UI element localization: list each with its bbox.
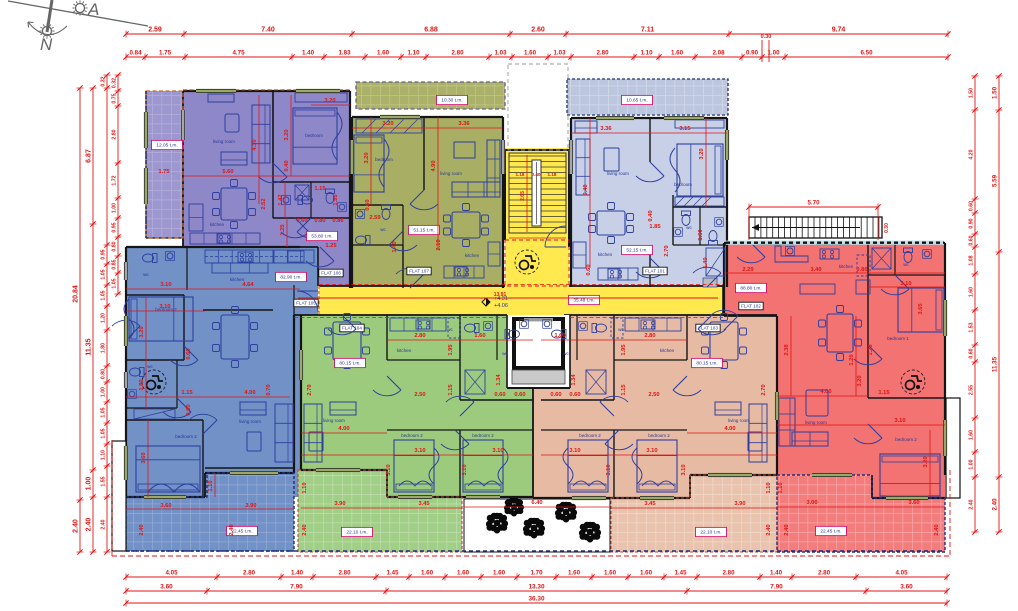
svg-text:0.80: 0.80	[314, 218, 325, 224]
svg-text:0.32: 0.32	[101, 76, 107, 86]
svg-text:2.10: 2.10	[436, 239, 442, 250]
svg-text:1.60: 1.60	[671, 50, 684, 57]
svg-text:3.20: 3.20	[364, 152, 370, 163]
svg-text:1.15: 1.15	[181, 390, 193, 396]
svg-text:0.40: 0.40	[648, 210, 654, 221]
svg-text:3.10: 3.10	[894, 418, 905, 424]
svg-text:1.40: 1.40	[703, 257, 709, 268]
svg-text:2.70: 2.70	[761, 384, 767, 395]
svg-text:2.59: 2.59	[148, 27, 162, 34]
svg-text:2.40: 2.40	[73, 519, 80, 533]
svg-text:1.10: 1.10	[208, 480, 214, 491]
svg-text:3.40: 3.40	[810, 267, 821, 273]
svg-text:3.20: 3.20	[139, 326, 145, 337]
svg-text:9.74: 9.74	[832, 27, 846, 34]
svg-text:2.50: 2.50	[648, 392, 659, 398]
svg-text:living room: living room	[440, 171, 462, 176]
svg-text:3.60: 3.60	[160, 584, 173, 591]
svg-text:0.30: 0.30	[884, 223, 890, 233]
svg-text:1.53: 1.53	[969, 322, 975, 332]
svg-text:2.60: 2.60	[531, 27, 545, 34]
svg-text:+4.06: +4.06	[494, 303, 508, 309]
svg-text:1.60: 1.60	[568, 570, 581, 577]
svg-text:1.60: 1.60	[698, 229, 704, 240]
svg-text:1.05: 1.05	[112, 278, 118, 288]
svg-text:3.60: 3.60	[900, 584, 913, 591]
svg-text:wc: wc	[447, 327, 453, 332]
svg-text:1.00: 1.00	[112, 203, 118, 213]
svg-text:kitchen: kitchen	[660, 348, 675, 353]
svg-text:0.80: 0.80	[856, 267, 867, 273]
svg-text:1.08: 1.08	[969, 255, 975, 265]
svg-text:1.10: 1.10	[407, 50, 420, 57]
svg-text:2.80: 2.80	[243, 570, 256, 577]
svg-text:1.25: 1.25	[325, 243, 337, 249]
svg-text:1.50: 1.50	[992, 86, 999, 99]
svg-text:2.29: 2.29	[742, 267, 754, 273]
svg-text:3.36: 3.36	[458, 121, 470, 127]
svg-text:3.20: 3.20	[699, 148, 705, 159]
svg-text:36.30: 36.30	[529, 596, 545, 603]
svg-text:living room: living room	[805, 420, 827, 425]
svg-text:4.00: 4.00	[338, 426, 349, 432]
svg-text:1.40: 1.40	[291, 570, 304, 577]
svg-text:1.15: 1.15	[621, 384, 627, 396]
svg-text:2.80: 2.80	[722, 570, 735, 577]
svg-text:2.70: 2.70	[664, 245, 670, 256]
svg-text:11.35: 11.35	[86, 338, 93, 355]
svg-text:3.10: 3.10	[681, 464, 687, 475]
svg-text:0.60: 0.60	[969, 235, 975, 245]
svg-text:living room: living room	[323, 418, 345, 423]
svg-text:80.15 t.m.: 80.15 t.m.	[696, 361, 717, 367]
svg-text:0.70: 0.70	[266, 384, 272, 395]
svg-text:1.80: 1.80	[139, 379, 145, 390]
svg-text:bedroom: bedroom	[674, 182, 692, 187]
svg-text:3.10: 3.10	[160, 282, 171, 288]
svg-text:5.70: 5.70	[807, 200, 820, 207]
svg-text:1.15: 1.15	[314, 186, 326, 192]
svg-text:0.60: 0.60	[494, 392, 505, 398]
svg-text:kitchen: kitchen	[397, 348, 412, 353]
svg-text:12.05 t.m.: 12.05 t.m.	[156, 143, 177, 149]
svg-text:1.45: 1.45	[674, 570, 687, 577]
svg-text:2.40: 2.40	[934, 524, 940, 535]
svg-text:wc: wc	[380, 227, 386, 232]
svg-text:living room: living room	[728, 418, 750, 423]
svg-text:0.60: 0.60	[969, 348, 975, 358]
svg-text:3.60: 3.60	[141, 452, 147, 463]
svg-text:bedroom 2: bedroom 2	[401, 433, 423, 438]
svg-text:2.08: 2.08	[712, 50, 725, 57]
svg-text:1.10: 1.10	[302, 482, 308, 493]
svg-text:3.20: 3.20	[923, 456, 929, 467]
svg-text:4.00: 4.00	[820, 389, 831, 395]
svg-text:1.75: 1.75	[159, 50, 172, 57]
svg-text:2.59: 2.59	[369, 215, 381, 221]
svg-text:1.60: 1.60	[457, 570, 470, 577]
svg-text:bedroom 1: bedroom 1	[887, 336, 909, 341]
svg-text:0.84: 0.84	[129, 50, 142, 57]
svg-text:1.10: 1.10	[640, 50, 653, 57]
svg-text:kitchen: kitchen	[465, 253, 480, 258]
svg-text:1.20: 1.20	[849, 354, 855, 365]
svg-text:6.50: 6.50	[860, 50, 873, 57]
svg-text:51.15 t.m.: 51.15 t.m.	[413, 228, 434, 234]
svg-text:6.87: 6.87	[86, 149, 93, 163]
svg-text:2.40: 2.40	[101, 519, 107, 529]
svg-text:1.34: 1.34	[496, 374, 502, 386]
svg-text:1.15: 1.15	[878, 390, 890, 396]
svg-text:1.80: 1.80	[101, 343, 107, 353]
svg-text:1.05: 1.05	[101, 290, 107, 300]
svg-text:0.60: 0.60	[550, 392, 561, 398]
svg-text:FLAT 104: FLAT 104	[342, 326, 362, 331]
svg-text:2.80: 2.80	[414, 333, 425, 339]
svg-text:0.32: 0.32	[112, 78, 118, 88]
svg-text:7.90: 7.90	[290, 584, 303, 591]
svg-text:0.80: 0.80	[112, 241, 118, 251]
svg-text:1.10: 1.10	[101, 450, 107, 460]
svg-text:3.60: 3.60	[908, 500, 919, 506]
svg-text:N: N	[40, 35, 53, 54]
svg-text:1.60: 1.60	[474, 333, 485, 339]
svg-text:13.30: 13.30	[529, 584, 545, 591]
svg-text:0.86: 0.86	[332, 218, 344, 224]
svg-text:2.40: 2.40	[766, 524, 772, 535]
svg-text:2.80: 2.80	[818, 570, 831, 577]
svg-text:0.85: 0.85	[112, 259, 118, 269]
svg-text:1.75: 1.75	[158, 169, 170, 175]
svg-text:1.70: 1.70	[530, 570, 543, 577]
svg-text:1.95: 1.95	[448, 344, 454, 356]
svg-text:1.95: 1.95	[621, 344, 627, 356]
svg-text:3.60: 3.60	[160, 503, 171, 509]
svg-text:1.10: 1.10	[766, 482, 772, 493]
svg-text:kitchen: kitchen	[839, 264, 854, 269]
svg-text:wc: wc	[903, 262, 909, 267]
svg-text:2.52: 2.52	[261, 198, 267, 209]
svg-text:wc: wc	[147, 364, 153, 369]
svg-text:bedroom 2: bedroom 2	[579, 433, 601, 438]
svg-text:3.10: 3.10	[606, 464, 612, 475]
svg-text:3.20: 3.20	[324, 98, 335, 104]
svg-text:FLAT 107: FLAT 107	[409, 269, 429, 274]
svg-text:3.65: 3.65	[918, 303, 924, 315]
svg-text:wc: wc	[502, 351, 508, 356]
svg-text:4.00: 4.00	[244, 390, 255, 396]
svg-text:2.40: 2.40	[139, 524, 145, 535]
svg-text:22.10 t.m.: 22.10 t.m.	[700, 530, 721, 536]
svg-text:2.80: 2.80	[596, 50, 609, 57]
svg-text:88.80 t.m.: 88.80 t.m.	[740, 286, 761, 292]
svg-text:3.10: 3.10	[900, 281, 911, 287]
svg-text:0.90: 0.90	[969, 218, 975, 228]
svg-text:bedroom 2: bedroom 2	[472, 433, 494, 438]
svg-text:35.48 t.m.: 35.48 t.m.	[573, 298, 594, 304]
svg-text:52.15 t.m.: 52.15 t.m.	[626, 248, 647, 254]
svg-text:1.34: 1.34	[571, 374, 577, 386]
svg-text:1.85: 1.85	[649, 224, 661, 230]
svg-text:4.05: 4.05	[895, 570, 908, 577]
svg-text:3.36: 3.36	[600, 126, 612, 132]
svg-text:80.15 t.m.: 80.15 t.m.	[339, 361, 360, 367]
svg-text:7.11: 7.11	[641, 27, 654, 34]
svg-text:FLAT 105: FLAT 105	[296, 301, 316, 306]
svg-text:1.25: 1.25	[280, 224, 286, 236]
svg-text:3.10: 3.10	[492, 448, 503, 454]
svg-text:82.90 t.m.: 82.90 t.m.	[280, 275, 301, 281]
svg-text:4.20: 4.20	[969, 149, 975, 159]
svg-text:1.05: 1.05	[101, 269, 107, 279]
svg-text:1.60: 1.60	[377, 50, 390, 57]
svg-text:13.91: 13.91	[494, 292, 507, 298]
svg-text:0.40: 0.40	[532, 172, 541, 177]
svg-text:1.18: 1.18	[548, 172, 557, 177]
svg-text:2.40: 2.40	[86, 518, 93, 532]
svg-text:2.40: 2.40	[969, 499, 975, 509]
svg-text:living room: living room	[239, 419, 261, 424]
svg-text:1.83: 1.83	[338, 50, 351, 57]
svg-text:4.30: 4.30	[252, 139, 258, 150]
svg-text:1.60: 1.60	[554, 333, 565, 339]
svg-text:6.40: 6.40	[583, 184, 589, 195]
svg-text:4.75: 4.75	[232, 50, 245, 57]
svg-text:3.45: 3.45	[418, 501, 430, 507]
svg-text:7.40: 7.40	[261, 27, 275, 34]
svg-text:1.72: 1.72	[112, 175, 118, 185]
svg-text:living room: living room	[213, 139, 235, 144]
svg-text:10.30 t.m.: 10.30 t.m.	[441, 98, 462, 104]
svg-text:6.88: 6.88	[424, 27, 438, 34]
svg-text:3.10: 3.10	[159, 304, 170, 310]
svg-text:3.90: 3.90	[245, 503, 256, 509]
svg-text:3.10: 3.10	[569, 448, 580, 454]
svg-text:kitchen: kitchen	[210, 222, 225, 227]
svg-text:2.40: 2.40	[992, 498, 999, 511]
svg-text:0.60: 0.60	[186, 348, 192, 359]
svg-text:0.75: 0.75	[112, 93, 118, 103]
svg-text:2.55: 2.55	[969, 385, 975, 395]
svg-text:3.00: 3.00	[806, 500, 817, 506]
svg-text:5.59: 5.59	[992, 174, 999, 187]
svg-text:bedroom 2: bedroom 2	[175, 434, 197, 439]
svg-text:0.60: 0.60	[969, 201, 975, 211]
svg-text:3.10: 3.10	[414, 448, 425, 454]
svg-text:1.00: 1.00	[101, 387, 107, 397]
svg-text:1.03: 1.03	[494, 50, 507, 57]
svg-text:1.05: 1.05	[101, 428, 107, 438]
svg-text:0.60: 0.60	[514, 392, 525, 398]
svg-text:1.15: 1.15	[448, 384, 454, 396]
svg-text:2.40: 2.40	[229, 524, 235, 535]
svg-text:22.10 t.m.: 22.10 t.m.	[346, 530, 367, 536]
svg-text:2.50: 2.50	[414, 392, 425, 398]
svg-text:FLAT 101: FLAT 101	[645, 269, 665, 274]
svg-text:1.50: 1.50	[969, 88, 975, 98]
svg-text:bedroom 2: bedroom 2	[648, 433, 670, 438]
svg-text:3.90: 3.90	[334, 501, 345, 507]
svg-text:FLAT 106: FLAT 106	[321, 271, 341, 276]
svg-text:2.65: 2.65	[520, 191, 526, 201]
svg-text:0.95: 0.95	[112, 222, 118, 232]
svg-text:2.80: 2.80	[112, 129, 118, 139]
svg-text:0.80: 0.80	[101, 369, 107, 379]
svg-text:2.80: 2.80	[451, 50, 464, 57]
svg-text:wc: wc	[563, 351, 569, 356]
svg-text:A: A	[87, 0, 99, 19]
svg-text:4.64: 4.64	[242, 282, 254, 288]
svg-text:2.40: 2.40	[784, 524, 790, 535]
svg-text:bedroom 2: bedroom 2	[895, 437, 917, 442]
svg-text:1.60: 1.60	[969, 430, 975, 440]
svg-text:1.40: 1.40	[392, 241, 398, 252]
svg-text:2.38: 2.38	[784, 344, 790, 356]
svg-text:1.40: 1.40	[770, 570, 783, 577]
svg-text:1.05: 1.05	[101, 407, 107, 417]
svg-text:wc: wc	[618, 327, 624, 332]
svg-text:2.70: 2.70	[307, 384, 313, 395]
svg-text:1.03: 1.03	[553, 50, 566, 57]
svg-text:1.55: 1.55	[101, 476, 107, 486]
svg-text:11.35: 11.35	[992, 356, 999, 372]
svg-text:3.20: 3.20	[382, 121, 393, 127]
svg-text:2.80: 2.80	[644, 333, 655, 339]
svg-text:1.20: 1.20	[101, 313, 107, 323]
svg-text:1.00: 1.00	[86, 477, 93, 491]
svg-text:0.60: 0.60	[569, 392, 580, 398]
svg-text:1.18: 1.18	[516, 172, 525, 177]
svg-text:10.65 t.m.: 10.65 t.m.	[626, 98, 647, 104]
svg-text:1.00: 1.00	[969, 459, 975, 469]
svg-text:bedroom: bedroom	[305, 133, 323, 138]
svg-text:1.60: 1.60	[969, 287, 975, 297]
svg-text:53.80 t.m.: 53.80 t.m.	[311, 234, 332, 240]
svg-text:kitchen: kitchen	[598, 252, 613, 257]
svg-text:3.15: 3.15	[679, 126, 691, 132]
svg-text:7.90: 7.90	[770, 584, 783, 591]
svg-text:22.45 t.m.: 22.45 t.m.	[820, 529, 841, 535]
svg-text:living room: living room	[607, 171, 629, 176]
svg-text:4.00: 4.00	[724, 426, 735, 432]
svg-text:2.80: 2.80	[338, 570, 351, 577]
svg-text:bedroom: bedroom	[375, 157, 393, 162]
svg-text:0.60: 0.60	[186, 404, 192, 415]
svg-text:3.10: 3.10	[462, 464, 468, 475]
svg-text:0.60: 0.60	[586, 264, 592, 275]
svg-text:1.47: 1.47	[278, 194, 284, 205]
svg-text:0.40: 0.40	[284, 160, 290, 171]
svg-text:4.05: 4.05	[165, 570, 178, 577]
svg-text:3.10: 3.10	[386, 464, 392, 475]
svg-text:3.20: 3.20	[284, 129, 290, 140]
svg-text:1.45: 1.45	[386, 570, 399, 577]
svg-text:0.60: 0.60	[365, 199, 371, 210]
svg-text:1.60: 1.60	[604, 570, 617, 577]
svg-text:6.40: 6.40	[531, 500, 542, 506]
svg-text:3.20: 3.20	[857, 375, 863, 386]
svg-text:1.10: 1.10	[778, 482, 784, 493]
svg-text:1.55: 1.55	[333, 194, 339, 206]
svg-text:wc: wc	[686, 225, 692, 230]
svg-text:1.60: 1.60	[640, 570, 653, 577]
svg-text:0.60: 0.60	[296, 218, 307, 224]
svg-text:4.90: 4.90	[431, 160, 437, 171]
svg-text:1.60: 1.60	[493, 570, 506, 577]
svg-text:2.40: 2.40	[302, 524, 308, 535]
svg-text:3.90: 3.90	[734, 501, 745, 507]
svg-text:0.95: 0.95	[101, 249, 107, 259]
svg-text:0.30: 0.30	[761, 34, 772, 40]
svg-text:5.60: 5.60	[222, 169, 233, 175]
svg-text:3.10: 3.10	[646, 448, 657, 454]
svg-text:20.84: 20.84	[73, 285, 80, 303]
svg-text:wc: wc	[143, 272, 149, 277]
svg-text:0.90: 0.90	[746, 50, 759, 57]
svg-text:1.20: 1.20	[868, 344, 874, 355]
svg-text:3.45: 3.45	[644, 501, 656, 507]
svg-text:1.60: 1.60	[524, 50, 537, 57]
svg-text:FLAT 102: FLAT 102	[741, 304, 761, 309]
svg-text:1.40: 1.40	[302, 50, 315, 57]
svg-text:1.60: 1.60	[421, 570, 434, 577]
